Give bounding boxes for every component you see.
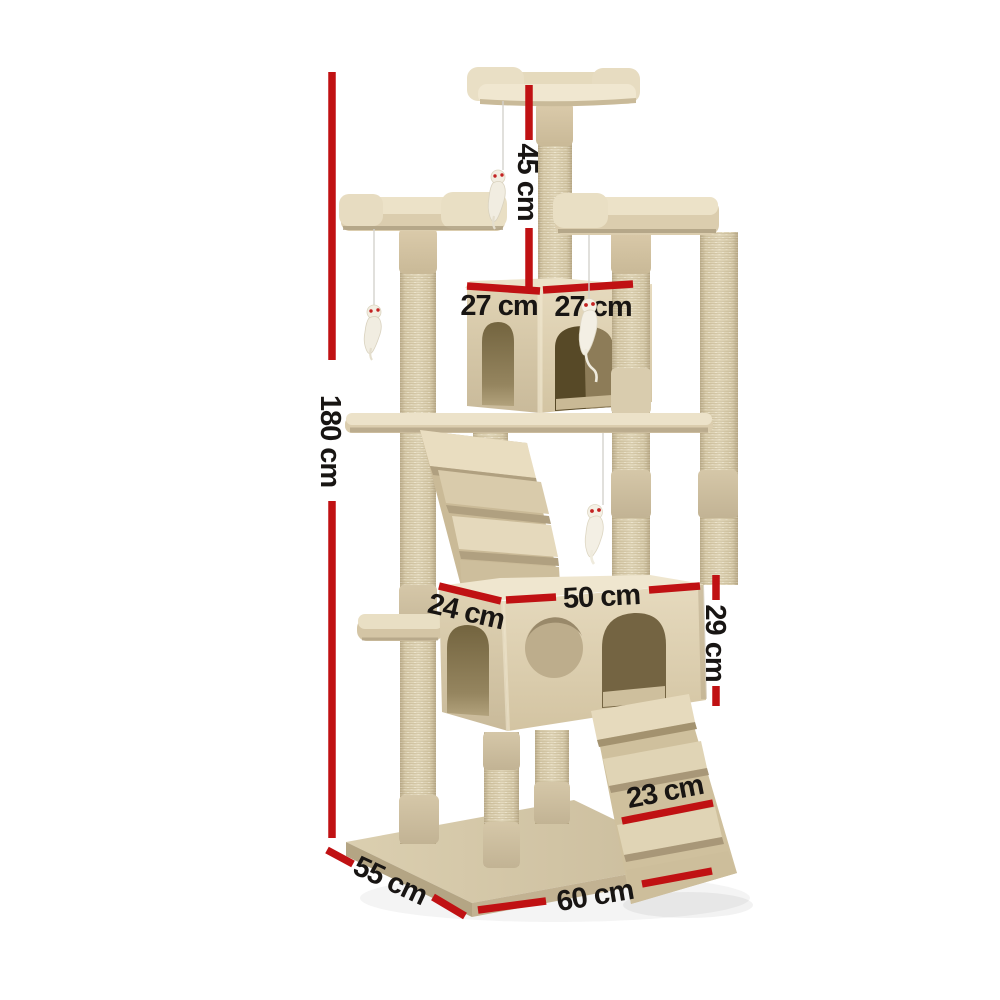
svg-text:45 cm: 45 cm <box>511 143 543 220</box>
svg-text:180 cm: 180 cm <box>314 395 346 487</box>
svg-text:27 cm: 27 cm <box>460 290 537 322</box>
svg-text:50 cm: 50 cm <box>562 579 641 615</box>
svg-text:29 cm: 29 cm <box>699 604 731 681</box>
